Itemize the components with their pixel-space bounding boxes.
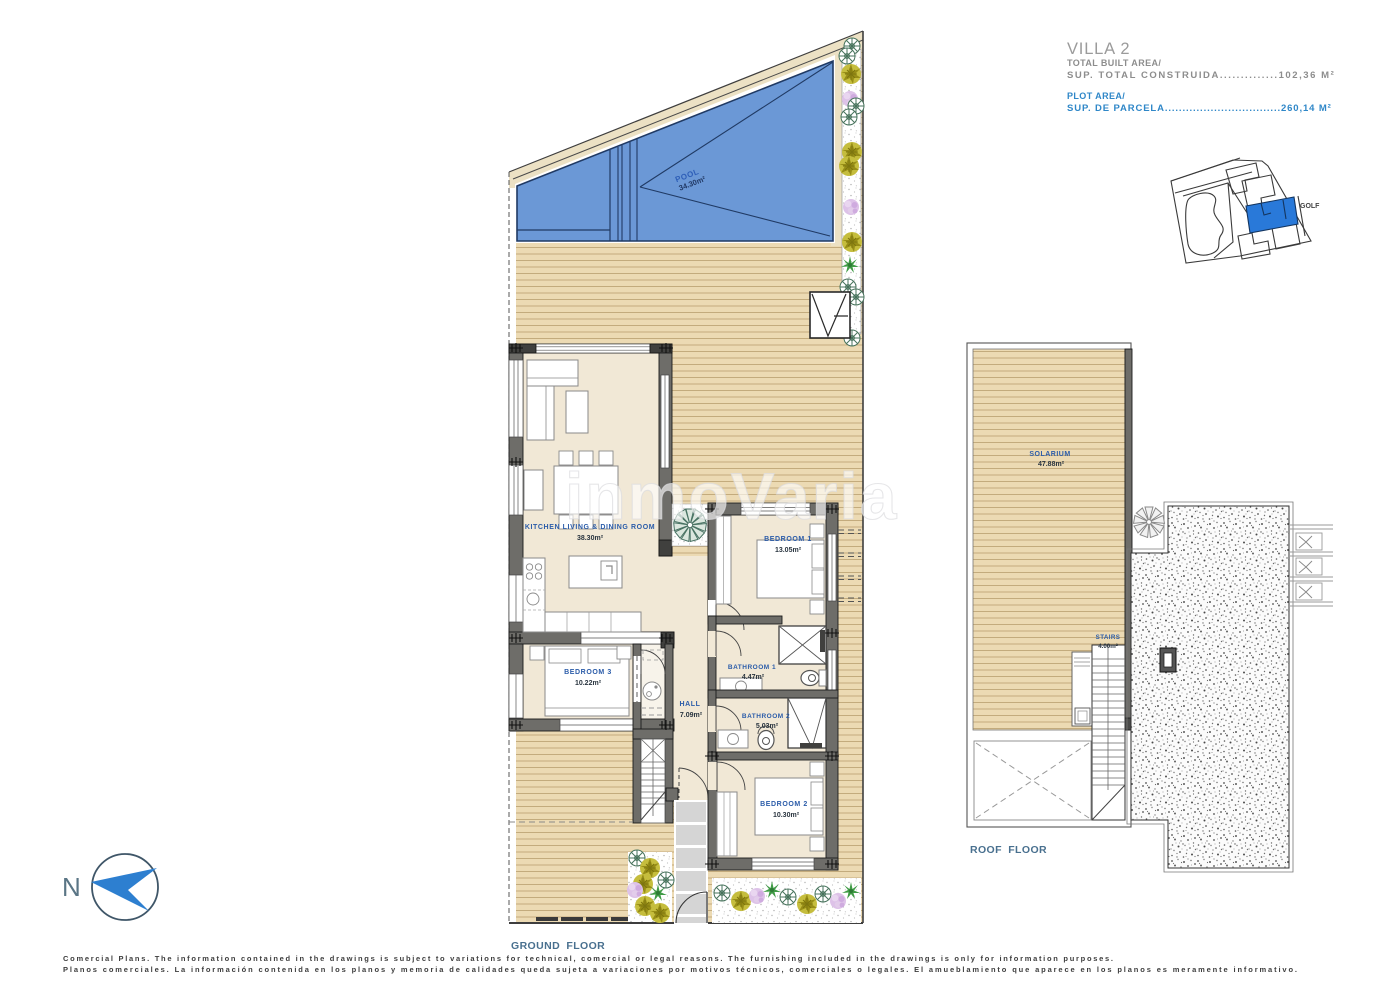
svg-text:HALL: HALL xyxy=(679,701,700,708)
svg-text:47.88m²: 47.88m² xyxy=(1038,461,1065,468)
svg-text:BEDROOM 3: BEDROOM 3 xyxy=(564,669,612,676)
svg-text:13.05m²: 13.05m² xyxy=(775,547,802,554)
svg-text:GROUND FLOOR: GROUND FLOOR xyxy=(511,940,605,952)
svg-text:BEDROOM 1: BEDROOM 1 xyxy=(764,536,812,543)
svg-text:SUP. TOTAL CONSTRUIDA.........: SUP. TOTAL CONSTRUIDA..............102,3… xyxy=(1067,70,1334,81)
svg-text:BATHROOM 2: BATHROOM 2 xyxy=(742,713,790,720)
svg-text:STAIRS: STAIRS xyxy=(1096,634,1121,641)
svg-text:4.47m²: 4.47m² xyxy=(742,674,765,681)
svg-text:inmoVaria: inmoVaria xyxy=(565,459,898,533)
svg-text:7.09m²: 7.09m² xyxy=(680,712,703,719)
svg-text:5.03m²: 5.03m² xyxy=(756,723,779,730)
svg-text:10.22m²: 10.22m² xyxy=(575,680,602,687)
svg-text:TOTAL BUILT AREA/: TOTAL BUILT AREA/ xyxy=(1067,58,1161,68)
svg-text:BEDROOM 2: BEDROOM 2 xyxy=(760,801,808,808)
svg-text:10.30m²: 10.30m² xyxy=(773,812,800,819)
svg-text:PLOT AREA/: PLOT AREA/ xyxy=(1067,91,1125,101)
svg-text:GOLF: GOLF xyxy=(1300,203,1320,210)
svg-text:N: N xyxy=(62,872,81,902)
svg-text:VILLA 2: VILLA 2 xyxy=(1067,40,1130,58)
svg-text:SOLARIUM: SOLARIUM xyxy=(1029,451,1070,458)
svg-text:4.00m²: 4.00m² xyxy=(1098,643,1118,650)
svg-text:Comercial Plans. The informati: Comercial Plans. The information contain… xyxy=(63,954,1113,963)
svg-text:SUP. DE PARCELA...............: SUP. DE PARCELA.........................… xyxy=(1067,103,1331,114)
svg-text:ROOF FLOOR: ROOF FLOOR xyxy=(970,844,1047,856)
svg-text:BATHROOM 1: BATHROOM 1 xyxy=(728,664,776,671)
svg-text:38.30m²: 38.30m² xyxy=(577,535,604,542)
